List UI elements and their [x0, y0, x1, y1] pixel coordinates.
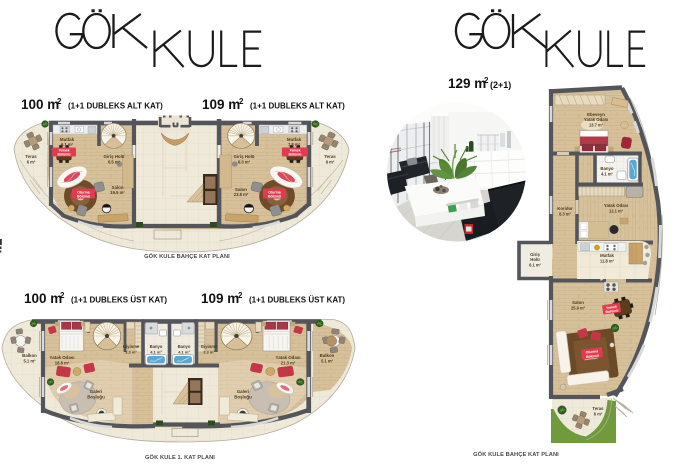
svg-text:Boşluğu: Boşluğu	[234, 395, 252, 400]
svg-text:Galeri: Galeri	[90, 389, 102, 394]
svg-text:GÖK KULE BAHÇE KAT PLANI: GÖK KULE BAHÇE KAT PLANI	[473, 451, 559, 458]
svg-text:Yatak Odası: Yatak Odası	[276, 355, 301, 360]
svg-text:109 m: 109 m	[202, 97, 240, 112]
svg-text:13.7 m²: 13.7 m²	[589, 123, 604, 128]
svg-text:6 m²: 6 m²	[326, 160, 335, 165]
svg-text:Banyo: Banyo	[150, 344, 163, 349]
svg-text:23.8 m²: 23.8 m²	[234, 192, 249, 197]
svg-text:7.8 m²: 7.8 m²	[288, 142, 301, 147]
svg-text:6.3 m²: 6.3 m²	[559, 212, 571, 217]
svg-text:6.3 m²: 6.3 m²	[238, 160, 251, 165]
svg-text:100 m: 100 m	[21, 97, 59, 112]
svg-text:Balkon: Balkon	[22, 353, 37, 358]
svg-text:4.1 m²: 4.1 m²	[178, 350, 190, 355]
svg-text:12.1 m²: 12.1 m²	[609, 209, 624, 214]
svg-text:(1+1 DUBLEKS ALT KAT): (1+1 DUBLEKS ALT KAT)	[250, 102, 345, 111]
svg-text:5.1 m²: 5.1 m²	[23, 359, 36, 364]
svg-text:Giriş Holü: Giriş Holü	[104, 154, 125, 159]
svg-text:Bölümü: Bölümü	[77, 195, 90, 199]
svg-text:2: 2	[60, 291, 65, 300]
svg-text:4.1 m²: 4.1 m²	[601, 172, 613, 177]
svg-text:Teras: Teras	[592, 406, 604, 411]
svg-text:(1+1 DUBLEKS ÜST KAT): (1+1 DUBLEKS ÜST KAT)	[71, 296, 167, 305]
svg-text:Yatak Odası: Yatak Odası	[584, 117, 608, 122]
svg-text:129 m: 129 m	[448, 76, 486, 91]
svg-text:Holü: Holü	[530, 257, 540, 262]
svg-text:19.5 m²: 19.5 m²	[110, 190, 125, 195]
svg-text:6.1 m²: 6.1 m²	[61, 142, 74, 147]
svg-text:2: 2	[57, 97, 62, 106]
svg-text:Bölümü: Bölümü	[57, 153, 70, 157]
svg-text:2: 2	[484, 76, 489, 85]
svg-text:Teras: Teras	[324, 154, 336, 159]
svg-text:Salon: Salon	[572, 300, 584, 305]
svg-text:Mutfak: Mutfak	[600, 253, 614, 258]
svg-text:6 m²: 6 m²	[27, 160, 36, 165]
svg-text:(1+1 DUBLEKS ÜST KAT): (1+1 DUBLEKS ÜST KAT)	[249, 296, 345, 305]
svg-text:GÖK KULE 1. KAT PLANI: GÖK KULE 1. KAT PLANI	[145, 454, 215, 461]
svg-text:Teras: Teras	[25, 154, 37, 159]
svg-text:GÖK KULE BAHÇE KAT PLANI: GÖK KULE BAHÇE KAT PLANI	[144, 253, 230, 260]
svg-text:Giyinme: Giyinme	[201, 344, 218, 349]
svg-text:109 m: 109 m	[201, 291, 239, 306]
svg-text:2: 2	[238, 291, 243, 300]
svg-text:6.1 m²: 6.1 m²	[529, 263, 541, 268]
svg-text:Banyo: Banyo	[600, 166, 614, 171]
svg-text:3.3 m²: 3.3 m²	[125, 350, 137, 355]
svg-text:Boşluğu: Boşluğu	[87, 395, 105, 400]
svg-text:Bölümü: Bölümü	[268, 195, 281, 199]
svg-text:21.3 m²: 21.3 m²	[281, 361, 296, 366]
svg-text:100 m: 100 m	[24, 291, 62, 306]
svg-text:25.9 m²: 25.9 m²	[571, 306, 586, 311]
svg-text:6.5 m²: 6.5 m²	[108, 160, 121, 165]
svg-text:Yatak Odası: Yatak Odası	[50, 355, 75, 360]
svg-text:Giriş Holü: Giriş Holü	[234, 154, 255, 159]
svg-text:5.1 m²: 5.1 m²	[321, 359, 334, 364]
svg-text:(1+1 DUBLEKS ALT KAT): (1+1 DUBLEKS ALT KAT)	[68, 102, 163, 111]
svg-text:Balkon: Balkon	[320, 353, 335, 358]
svg-text:3.3 m²: 3.3 m²	[203, 350, 215, 355]
svg-text:4.1 m²: 4.1 m²	[150, 350, 162, 355]
svg-text:Galeri: Galeri	[237, 389, 249, 394]
svg-text:6 m²: 6 m²	[594, 412, 603, 417]
svg-text:Yatak Odası: Yatak Odası	[604, 203, 628, 208]
svg-text:2: 2	[239, 97, 244, 106]
svg-text:Giyinme: Giyinme	[123, 344, 140, 349]
svg-text:18.8 m²: 18.8 m²	[55, 361, 70, 366]
svg-text:Banyo: Banyo	[178, 344, 191, 349]
svg-text:Koridor: Koridor	[557, 206, 573, 211]
svg-text:(2+1): (2+1)	[490, 80, 511, 90]
svg-text:11.8 m²: 11.8 m²	[600, 259, 615, 264]
svg-text:Bölümü: Bölümü	[288, 153, 301, 157]
